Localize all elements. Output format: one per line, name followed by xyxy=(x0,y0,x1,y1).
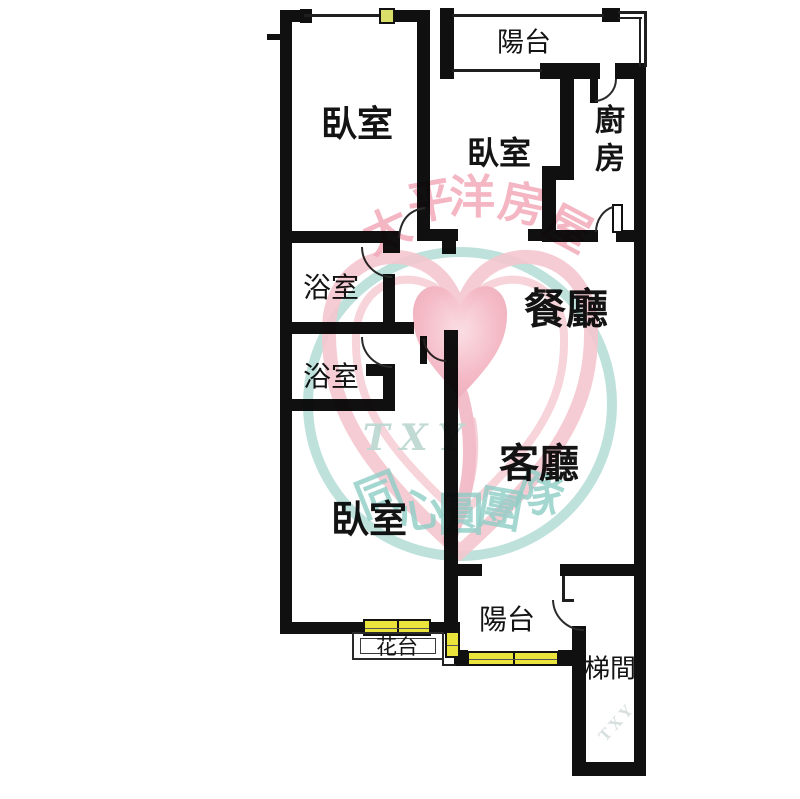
window-balcony-yellow xyxy=(467,651,559,666)
wall-kitchen-door-leaf-top xyxy=(590,78,598,103)
window-balcony-top xyxy=(452,14,604,17)
wall-bedroom2-foot-left xyxy=(417,229,458,241)
wall-left-tick xyxy=(267,34,281,40)
wall-living-center xyxy=(444,330,458,634)
wall-balcony-window-rblock xyxy=(558,650,574,666)
agency-watermark: 太 平 洋 房 屋 TXY 同 心 圓 團 隊 TXY xyxy=(0,0,800,799)
room-label-bedroom-3: 臥室 xyxy=(331,489,407,544)
floor-plan: 陽台 臥室 臥室 廚房 浴室 浴室 餐廳 客廳 臥室 陽台 花台 梯間 太 平 … xyxy=(0,0,800,799)
wall-hall-door-leaf xyxy=(420,336,427,364)
watermark-brand-char-2: 平 xyxy=(402,162,459,235)
room-label-living: 客廳 xyxy=(499,431,579,489)
wall-stairwell-bottom xyxy=(572,762,646,776)
door-arc-kitchen-top xyxy=(595,79,616,101)
window-marker-yellow xyxy=(379,8,395,24)
kitchen-door-leaf-bottom xyxy=(612,204,623,233)
room-label-bedroom-2: 臥室 xyxy=(467,128,531,174)
room-label-bathroom-1: 浴室 xyxy=(303,266,359,306)
room-label-balcony-bottom: 陽台 xyxy=(479,598,535,638)
room-label-bedroom-1: 臥室 xyxy=(321,95,393,147)
window-bedroom2-top xyxy=(452,69,542,72)
watermark-heart-inner xyxy=(413,286,507,397)
watermark-brand-char-1: 太 xyxy=(350,188,420,267)
room-label-dining: 餐廳 xyxy=(524,276,608,337)
room-label-bathroom-2: 浴室 xyxy=(303,355,359,395)
room-label-balcony-top: 陽台 xyxy=(497,21,551,60)
window-corner-yellow xyxy=(445,631,460,658)
connector-line-h xyxy=(442,664,456,666)
wall-bedroom1-right xyxy=(417,10,430,233)
wall-bedroom2-post xyxy=(442,241,456,254)
wall-bathroom2-bottom xyxy=(280,399,394,411)
wall-living-bottom-stub xyxy=(444,564,482,576)
wall-kitchen-left-upper xyxy=(560,74,574,174)
door-arc-hallway xyxy=(424,339,446,361)
door-arcs xyxy=(0,0,800,799)
door-arc-kitchen-bottom xyxy=(596,207,613,232)
wall-bedroom1-bottom xyxy=(280,231,400,243)
watermark-heart-graphic xyxy=(0,0,800,799)
window-centerline xyxy=(365,628,429,629)
railing-top-right-v2 xyxy=(639,17,641,67)
room-label-stairwell: 梯間 xyxy=(584,649,636,686)
wall-living-bottom-right xyxy=(560,564,646,576)
railing-top-right-v1 xyxy=(644,11,647,67)
room-label-kitchen: 廚房 xyxy=(584,104,628,180)
door-arc-bathroom2 xyxy=(362,337,392,367)
railing-top-right-h1 xyxy=(618,11,647,14)
watermark-corner-text: TXY xyxy=(595,699,639,745)
wall-door-post-a xyxy=(383,231,400,253)
wall-bath-divider xyxy=(280,322,414,334)
window-centerline xyxy=(447,645,458,646)
room-label-flower-stand: 花台 xyxy=(376,631,418,661)
window-centerline xyxy=(469,659,557,660)
wall-bedroom2-foot-right xyxy=(528,229,556,241)
entry-jamb-h xyxy=(562,599,574,602)
